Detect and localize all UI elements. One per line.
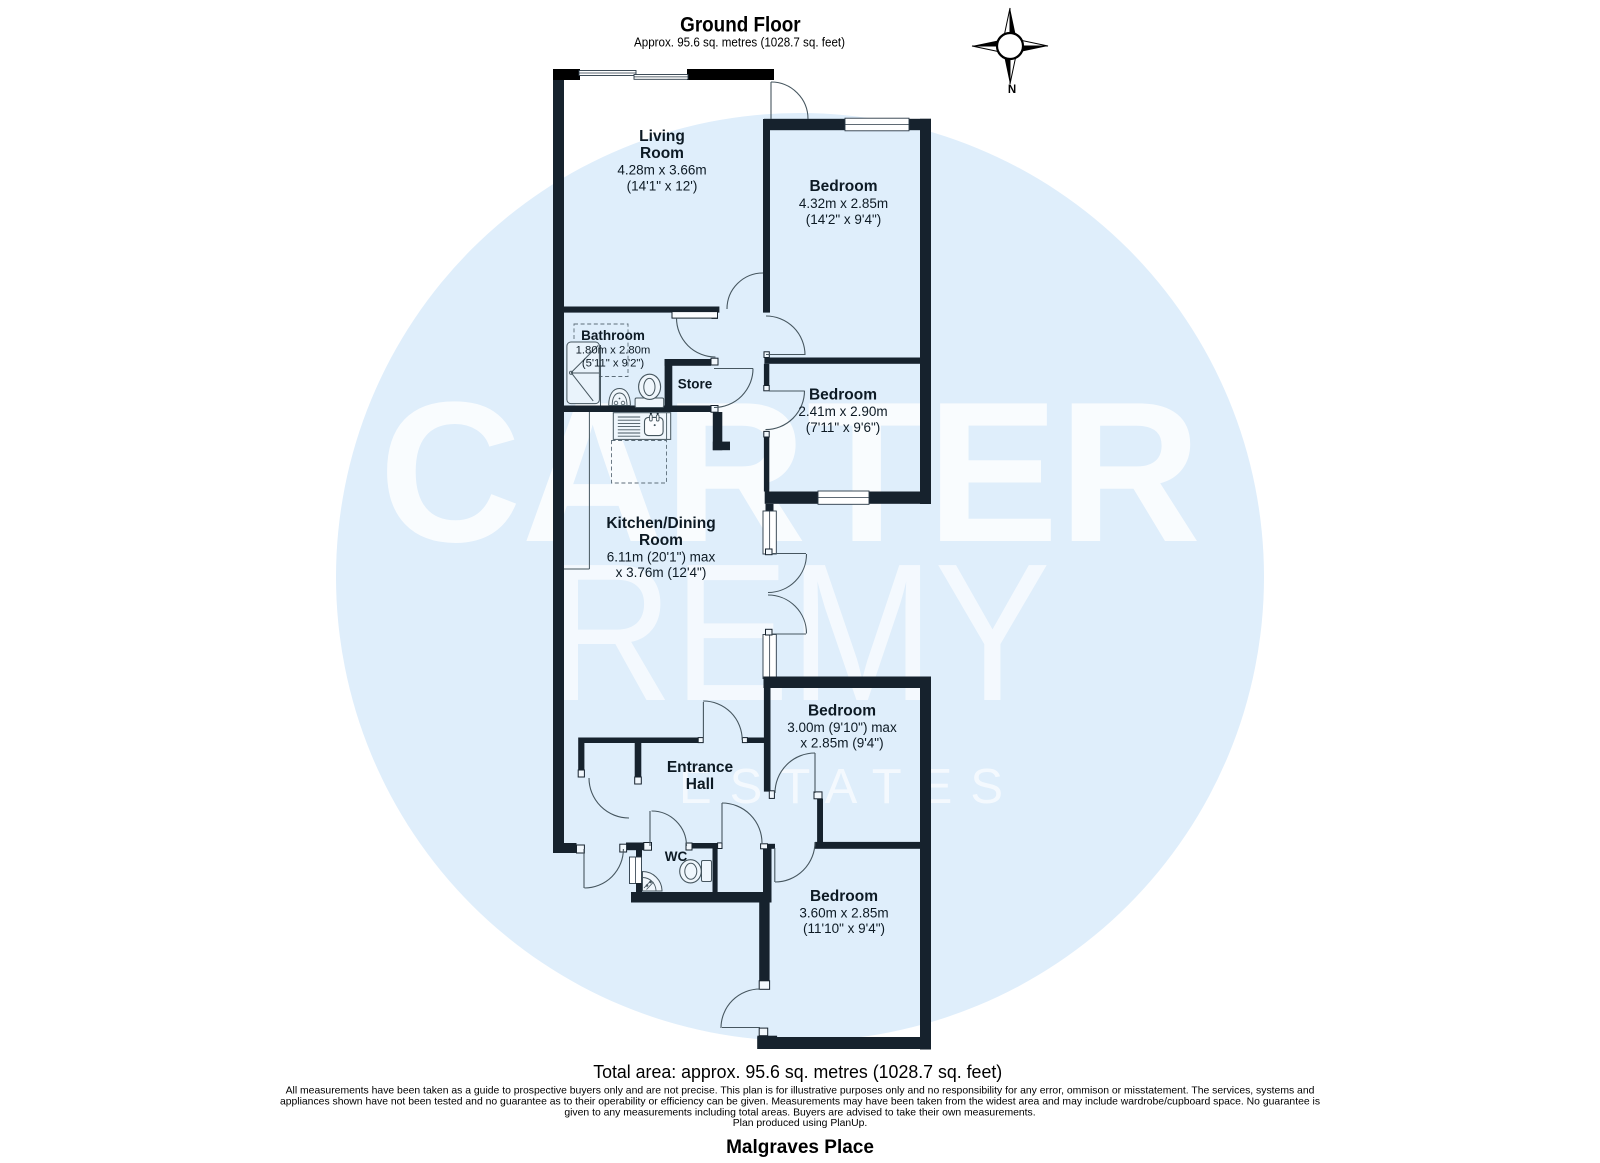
svg-text:Total area: approx. 95.6 sq. m: Total area: approx. 95.6 sq. metres (102… xyxy=(593,1062,1002,1082)
svg-text:(7'11" x 9'6"): (7'11" x 9'6") xyxy=(806,420,881,435)
svg-text:Room: Room xyxy=(639,532,683,549)
svg-text:Plan produced using PlanUp.: Plan produced using PlanUp. xyxy=(733,1118,868,1129)
svg-text:WC: WC xyxy=(665,849,688,864)
svg-text:2.41m x 2.90m: 2.41m x 2.90m xyxy=(798,404,887,419)
svg-text:(14'1" x 12'): (14'1" x 12') xyxy=(627,179,698,194)
svg-text:3.60m x 2.85m: 3.60m x 2.85m xyxy=(799,906,888,921)
svg-text:Kitchen/Dining: Kitchen/Dining xyxy=(606,515,715,532)
svg-text:1.80m x 2.80m: 1.80m x 2.80m xyxy=(576,345,651,357)
svg-text:Ground Floor: Ground Floor xyxy=(680,12,801,36)
svg-text:All measurements have been tak: All measurements have been taken as a gu… xyxy=(286,1086,1315,1097)
svg-text:given to any measurements incl: given to any measurements including tota… xyxy=(564,1108,1035,1119)
svg-text:appliances shown have not been: appliances shown have not been tested an… xyxy=(280,1097,1320,1108)
svg-text:(14'2" x 9'4"): (14'2" x 9'4") xyxy=(806,212,882,227)
svg-text:3.00m (9'10") max: 3.00m (9'10") max xyxy=(787,720,897,735)
svg-text:Living: Living xyxy=(639,128,685,145)
svg-text:(5'11" x 9'2"): (5'11" x 9'2") xyxy=(582,358,645,370)
svg-text:Bedroom: Bedroom xyxy=(810,888,878,905)
svg-text:Bedroom: Bedroom xyxy=(809,387,877,404)
svg-text:Bathroom: Bathroom xyxy=(581,328,645,343)
svg-text:Bedroom: Bedroom xyxy=(808,703,876,720)
svg-text:6.11m (20'1") max: 6.11m (20'1") max xyxy=(607,550,716,565)
svg-text:Room: Room xyxy=(640,145,684,162)
svg-text:Malgraves Place: Malgraves Place xyxy=(726,1137,874,1158)
svg-text:x 2.85m (9'4"): x 2.85m (9'4") xyxy=(800,736,883,751)
svg-text:Approx. 95.6 sq. metres (1028.: Approx. 95.6 sq. metres (1028.7 sq. feet… xyxy=(634,34,845,49)
svg-text:N: N xyxy=(1008,84,1016,96)
svg-text:(11'10" x 9'4"): (11'10" x 9'4") xyxy=(803,921,885,936)
svg-text:x 3.76m (12'4"): x 3.76m (12'4") xyxy=(616,565,707,580)
svg-text:Store: Store xyxy=(678,377,713,392)
svg-text:Hall: Hall xyxy=(686,776,714,793)
svg-text:4.28m x 3.66m: 4.28m x 3.66m xyxy=(617,163,706,178)
svg-text:Entrance: Entrance xyxy=(667,759,734,776)
svg-text:Bedroom: Bedroom xyxy=(809,178,877,195)
svg-text:4.32m x 2.85m: 4.32m x 2.85m xyxy=(799,196,888,211)
